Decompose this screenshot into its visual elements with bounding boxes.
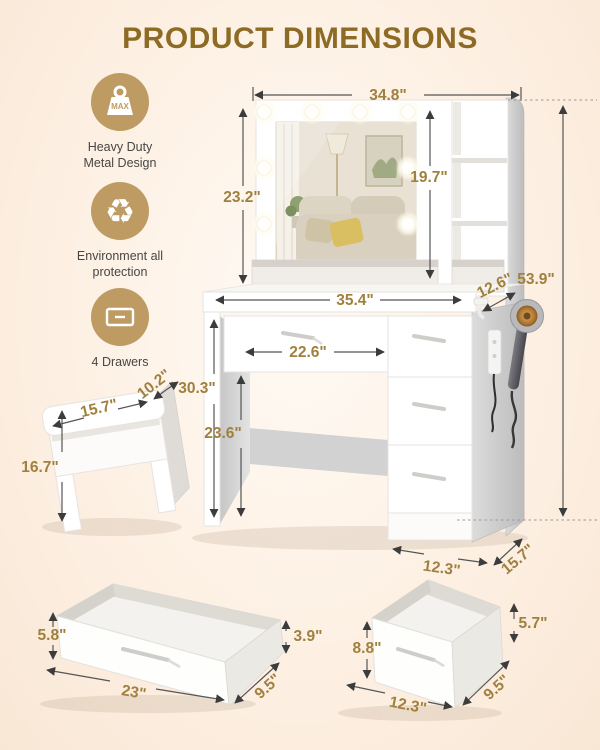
dim-label: 53.9": [517, 271, 555, 288]
dim-cabinet-width: 12.3": [393, 549, 487, 580]
dim-label: 22.6": [289, 344, 327, 361]
dim-cabinet-depth: 15.7": [494, 539, 538, 578]
dim-deep-drawer-back-height: 5.7": [514, 604, 547, 642]
dim-label: 5.8": [38, 627, 67, 644]
drawer-stack: [388, 316, 472, 540]
dim-wide-drawer-back-height: 3.9": [286, 621, 322, 653]
dim-label: 34.8": [369, 87, 407, 104]
dim-label: 3.9": [294, 628, 323, 645]
dim-label: 5.7": [519, 615, 548, 632]
dim-label: 35.4": [336, 292, 374, 309]
dim-label: 23.6": [204, 425, 242, 442]
dim-label: 19.7": [410, 169, 448, 186]
light-bulb: [395, 211, 421, 237]
light-bulb: [299, 99, 325, 125]
dim-label: 23.2": [223, 189, 261, 206]
hair-dryer: [507, 300, 543, 449]
dim-label: 30.3": [178, 380, 216, 397]
light-bulb: [251, 211, 277, 237]
light-bulb: [251, 155, 277, 181]
back-stretcher: [250, 428, 388, 476]
dim-label: 15.7": [498, 541, 538, 578]
dim-mirror-height: 23.2": [223, 109, 261, 283]
dimension-diagram: 34.8" 23.2" 19.7" 53.9": [0, 0, 600, 750]
dim-label: 16.7": [21, 459, 59, 476]
light-bulb: [251, 99, 277, 125]
vanity-illustration: [203, 98, 544, 542]
product-dimensions-infographic: PRODUCT DIMENSIONS MAX Heavy Duty Metal …: [0, 0, 600, 750]
dim-label: 12.3": [422, 558, 462, 580]
dim-label: 8.8": [353, 640, 382, 657]
wide-drawer-illustration: [57, 584, 284, 706]
